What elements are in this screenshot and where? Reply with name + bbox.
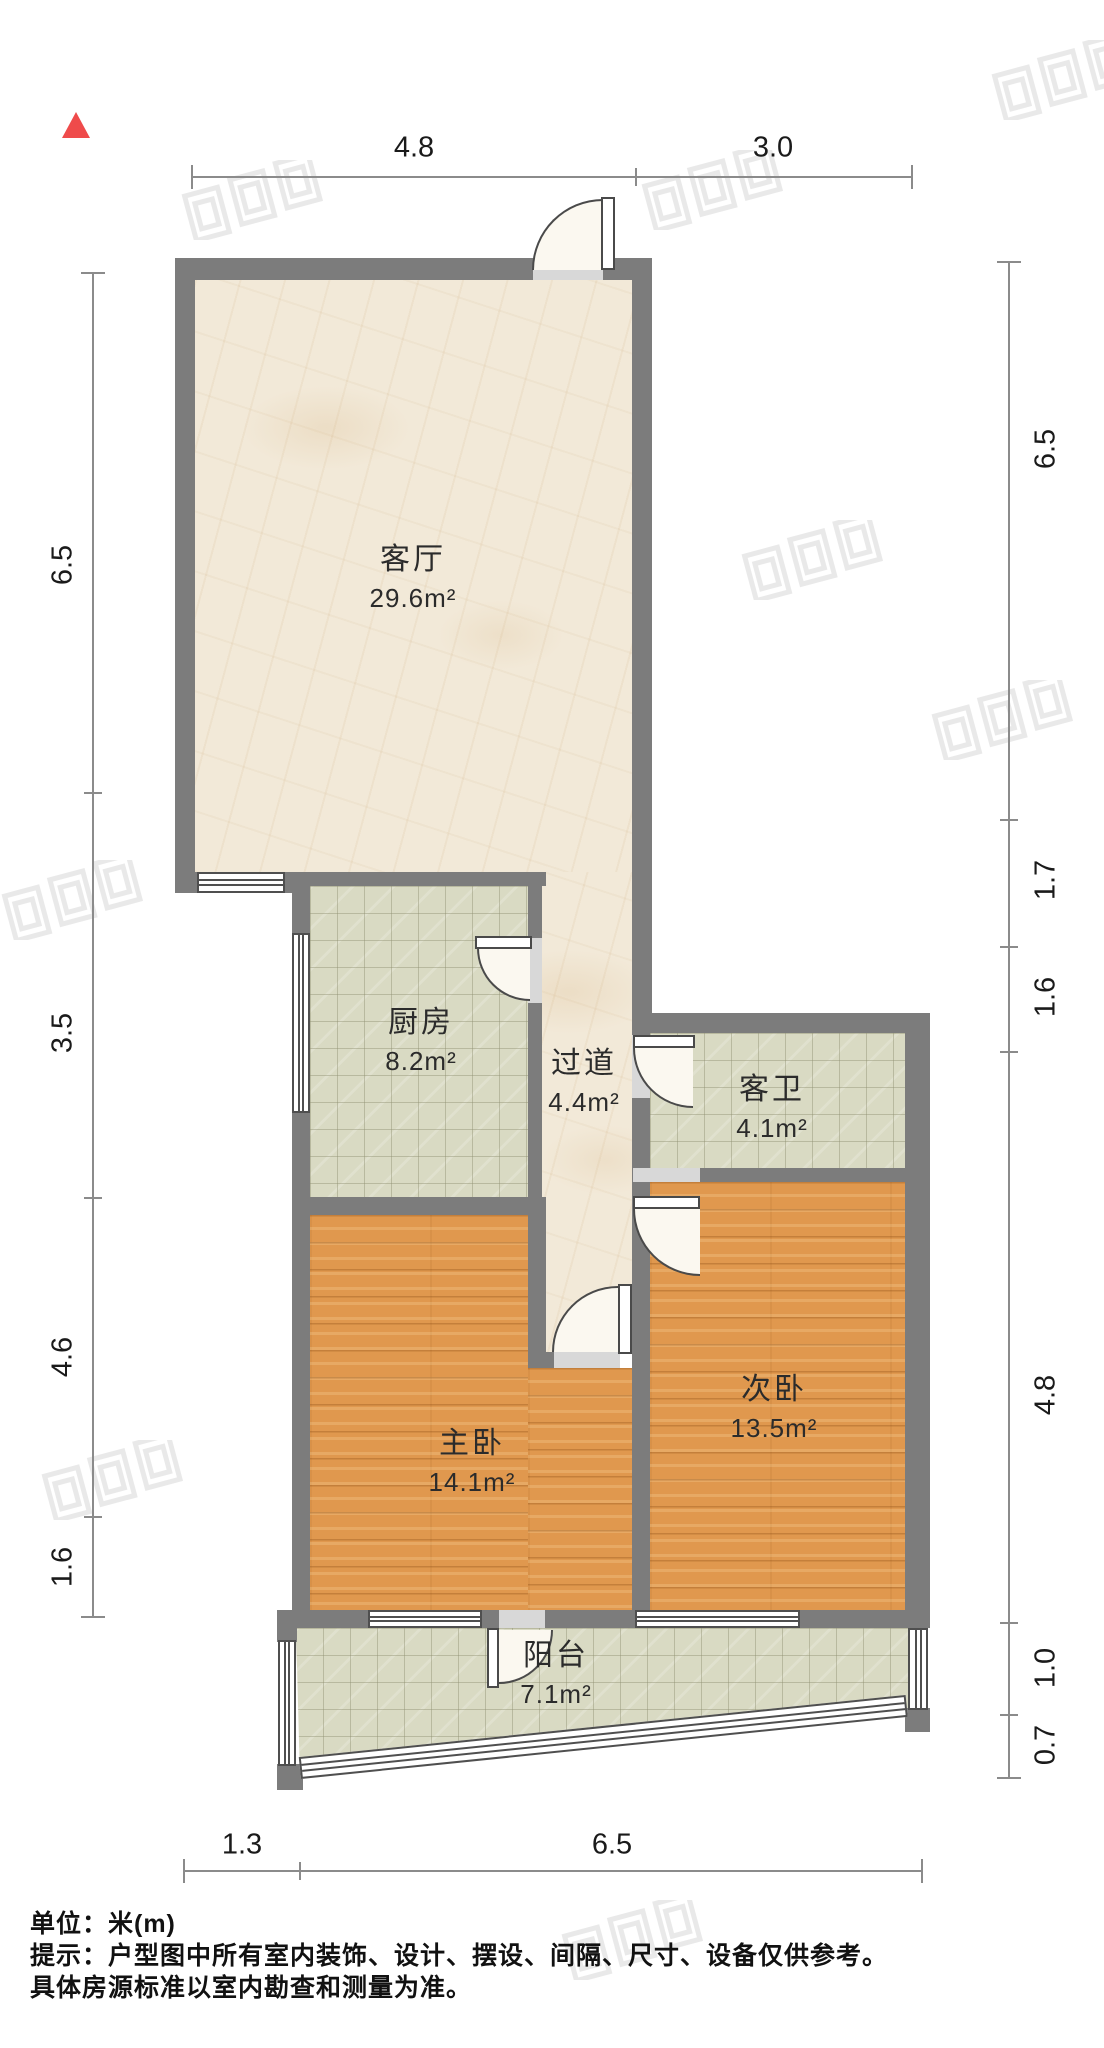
kitchen-window <box>292 933 310 1113</box>
dimension-tick <box>911 165 913 189</box>
dimension-line-top <box>192 176 912 178</box>
room-area: 7.1m² <box>520 1679 591 1710</box>
room-label-balcony: 阳台 7.1m² <box>520 1630 591 1710</box>
room-name: 厨房 <box>385 997 456 1041</box>
wall <box>905 1708 930 1732</box>
dimension-label: 0.7 <box>1030 1725 1063 1765</box>
dimension-tick <box>81 1616 105 1618</box>
tip-note-line2: 具体房源标准以室内勘查和测量为准。 <box>30 1972 888 2004</box>
dimension-tick <box>183 1859 185 1883</box>
entrance-door-panel <box>601 197 615 270</box>
balcony-door-panel <box>487 1628 499 1688</box>
wall <box>310 872 546 886</box>
dimension-line-left <box>92 273 94 1617</box>
dimension-tick <box>299 1862 301 1880</box>
room-area: 13.5m² <box>731 1413 818 1444</box>
wall <box>905 1013 930 1628</box>
watermark-icon <box>930 680 1080 760</box>
room-label-living: 客厅 29.6m² <box>370 534 457 614</box>
room-name: 过道 <box>548 1038 619 1082</box>
dimension-tick <box>997 1777 1021 1779</box>
watermark-icon <box>990 40 1104 120</box>
dimension-tick <box>921 1859 923 1883</box>
room-name: 客厅 <box>370 534 457 578</box>
dimension-label: 4.8 <box>394 132 434 165</box>
bathroom-door-panel <box>633 1035 695 1048</box>
dimension-tick <box>997 261 1021 263</box>
second-bedroom-door-panel <box>633 1196 700 1209</box>
dimension-label: 1.7 <box>1030 860 1063 900</box>
dimension-tick <box>81 272 105 274</box>
kitchen-door-panel <box>475 936 532 949</box>
room-name: 次卧 <box>731 1364 818 1408</box>
north-arrow-icon <box>62 112 90 138</box>
watermark-icon <box>40 1440 190 1520</box>
dimension-label: 1.3 <box>222 1829 262 1862</box>
dimension-label: 6.5 <box>592 1829 632 1862</box>
wall <box>292 1215 310 1610</box>
room-area: 4.1m² <box>736 1113 807 1144</box>
master-bedroom-floor <box>310 1215 528 1610</box>
dimension-line-bottom <box>184 1870 923 1872</box>
watermark-icon <box>180 160 330 240</box>
room-label-kitchen: 厨房 8.2m² <box>385 997 456 1077</box>
master-bedroom-floor <box>528 1368 632 1610</box>
balcony-left-window <box>278 1640 296 1766</box>
master-bedroom-door-opening <box>554 1352 620 1368</box>
entrance-door-swing-icon <box>532 199 603 270</box>
dimension-tick <box>1000 819 1018 821</box>
room-name: 客卫 <box>736 1064 807 1108</box>
dimension-label: 3.0 <box>753 132 793 165</box>
unit-note: 单位：米(m) <box>30 1908 888 1940</box>
dimension-tick <box>191 165 193 189</box>
dimension-label: 3.5 <box>47 1013 80 1053</box>
balcony-door-opening <box>499 1610 545 1628</box>
room-name: 阳台 <box>520 1630 591 1674</box>
master-bedroom-window <box>368 1610 482 1628</box>
wall <box>650 1013 930 1033</box>
dimension-tick <box>635 168 637 186</box>
dimension-label: 1.0 <box>1030 1648 1063 1688</box>
floor-plan-canvas: 客厅 29.6m² 厨房 8.2m² 过道 4.4m² 客卫 4.1m² 主卧 … <box>0 0 1104 2048</box>
wall <box>528 1352 554 1368</box>
room-area: 14.1m² <box>429 1467 516 1498</box>
room-area: 29.6m² <box>370 583 457 614</box>
wall <box>528 1210 546 1352</box>
dimension-label: 4.8 <box>1030 1375 1063 1415</box>
wall <box>528 886 542 1210</box>
dimension-tick <box>84 1197 102 1199</box>
dimension-label: 6.5 <box>47 545 80 585</box>
watermark-icon <box>740 520 890 600</box>
room-label-second-bedroom: 次卧 13.5m² <box>731 1364 818 1444</box>
room-label-master-bedroom: 主卧 14.1m² <box>429 1418 516 1498</box>
dimension-tick <box>84 1516 102 1518</box>
wall <box>175 258 195 893</box>
living-room-window <box>197 872 285 893</box>
second-bedroom-window <box>635 1610 800 1628</box>
wall <box>292 1197 546 1215</box>
room-name: 主卧 <box>429 1418 516 1462</box>
dimension-label: 1.6 <box>1030 977 1063 1017</box>
dimension-tick <box>84 792 102 794</box>
dimension-tick <box>1000 1622 1018 1624</box>
room-area: 4.4m² <box>548 1087 619 1118</box>
balcony-right-window <box>908 1628 928 1710</box>
dimension-label: 6.5 <box>1030 429 1063 469</box>
dimension-tick <box>1000 1714 1018 1716</box>
dimension-line-right <box>1008 262 1010 1778</box>
dimension-label: 1.6 <box>47 1547 80 1587</box>
watermark-icon <box>0 860 150 940</box>
dimension-tick <box>1000 946 1018 948</box>
master-bedroom-door-panel <box>618 1284 632 1354</box>
dimension-tick <box>1000 1051 1018 1053</box>
wall <box>632 1033 650 1628</box>
tip-note-line1: 提示：户型图中所有室内装饰、设计、摆设、间隔、尺寸、设备仅供参考。 <box>30 1940 888 1972</box>
second-bedroom-door-opening <box>633 1168 700 1182</box>
room-area: 8.2m² <box>385 1046 456 1077</box>
room-label-hallway: 过道 4.4m² <box>548 1038 619 1118</box>
wall <box>632 258 652 1033</box>
footer-notes: 单位：米(m) 提示：户型图中所有室内装饰、设计、摆设、间隔、尺寸、设备仅供参考… <box>30 1908 888 2004</box>
room-label-bathroom: 客卫 4.1m² <box>736 1064 807 1144</box>
dimension-label: 4.6 <box>47 1337 80 1377</box>
